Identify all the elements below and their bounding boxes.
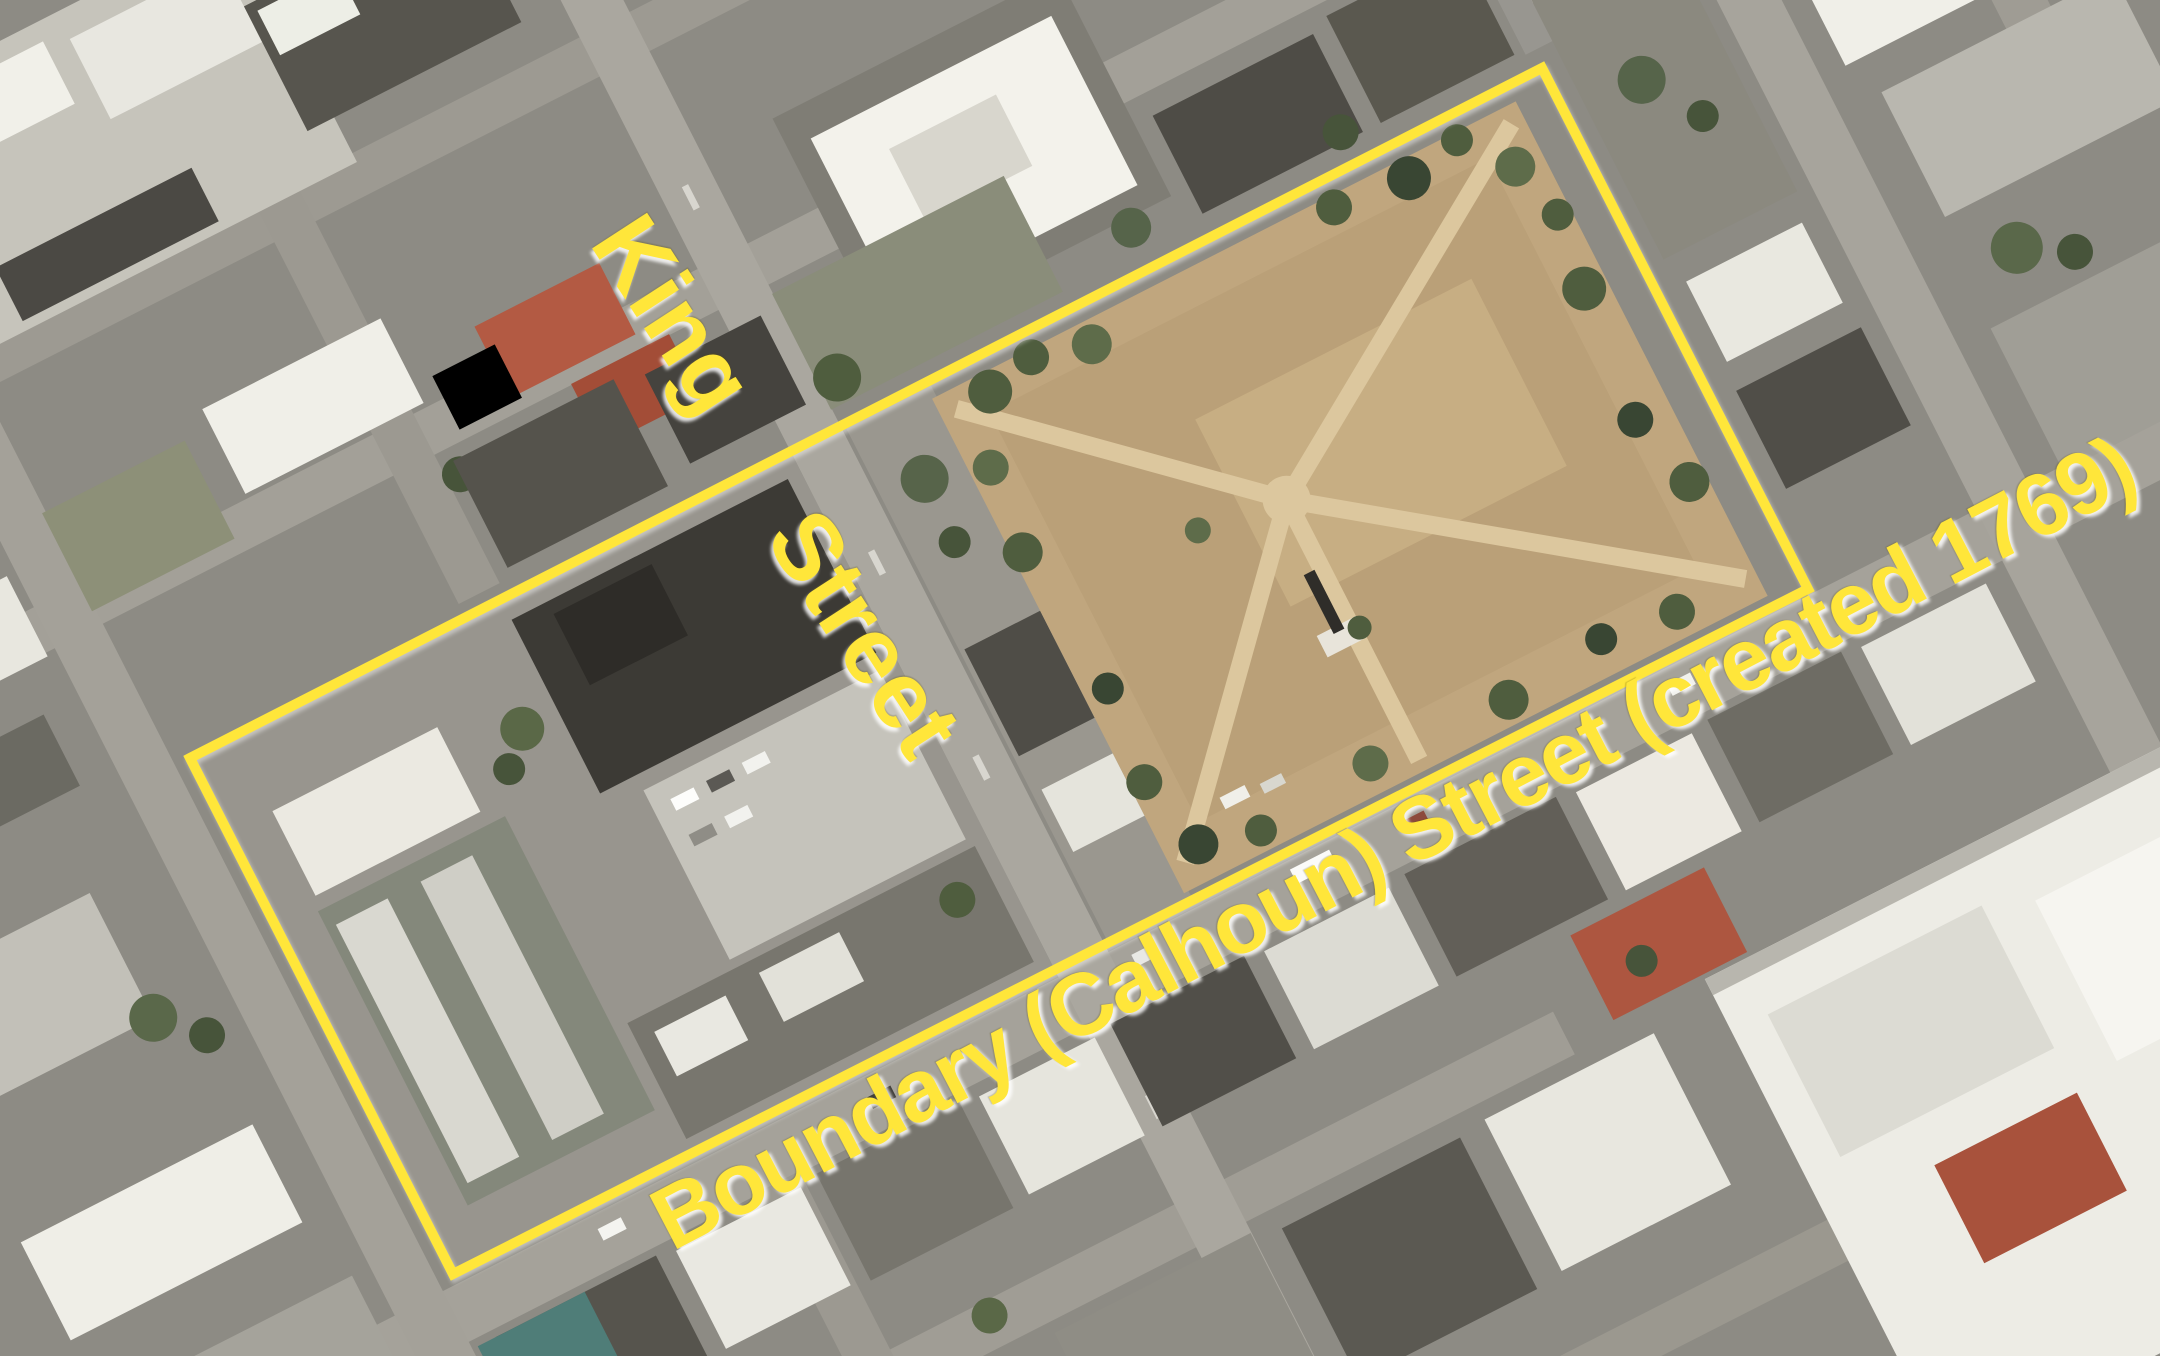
boundary-rectangle-overlay xyxy=(0,0,2160,1356)
annotated-aerial-map: King Street Boundary (Calhoun) Street (c… xyxy=(0,0,2160,1356)
